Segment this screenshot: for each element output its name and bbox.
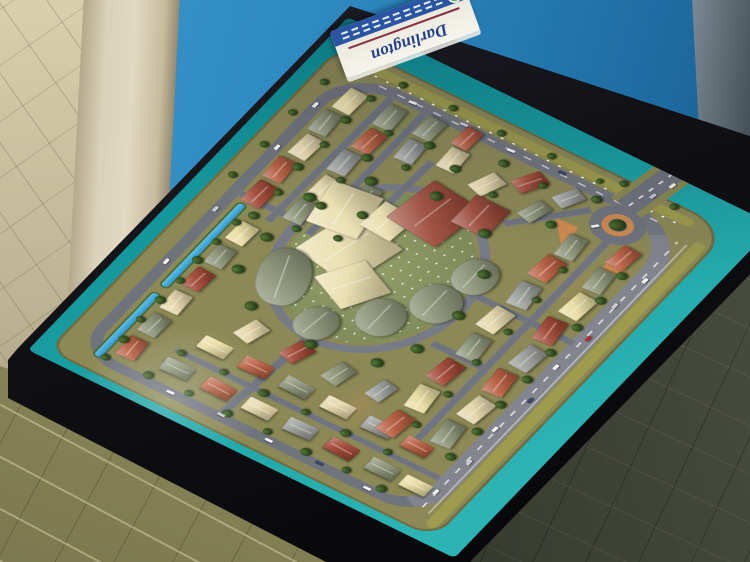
car	[465, 459, 473, 465]
car	[591, 224, 600, 228]
car	[584, 336, 592, 342]
car	[506, 148, 515, 153]
car	[273, 144, 281, 150]
car	[166, 390, 175, 396]
car	[526, 397, 534, 403]
car	[558, 170, 567, 175]
car	[649, 193, 658, 199]
car	[363, 485, 372, 491]
scene-photo: Darlington	[0, 0, 750, 562]
car	[552, 364, 560, 370]
car	[491, 426, 499, 432]
car	[641, 278, 649, 284]
car	[212, 206, 220, 212]
car	[216, 412, 225, 418]
car	[408, 100, 417, 105]
car	[312, 102, 320, 108]
car	[459, 122, 468, 127]
car	[668, 183, 676, 189]
car	[611, 303, 619, 309]
car	[315, 460, 324, 466]
car	[432, 489, 440, 495]
car	[163, 258, 171, 264]
car	[264, 438, 273, 444]
